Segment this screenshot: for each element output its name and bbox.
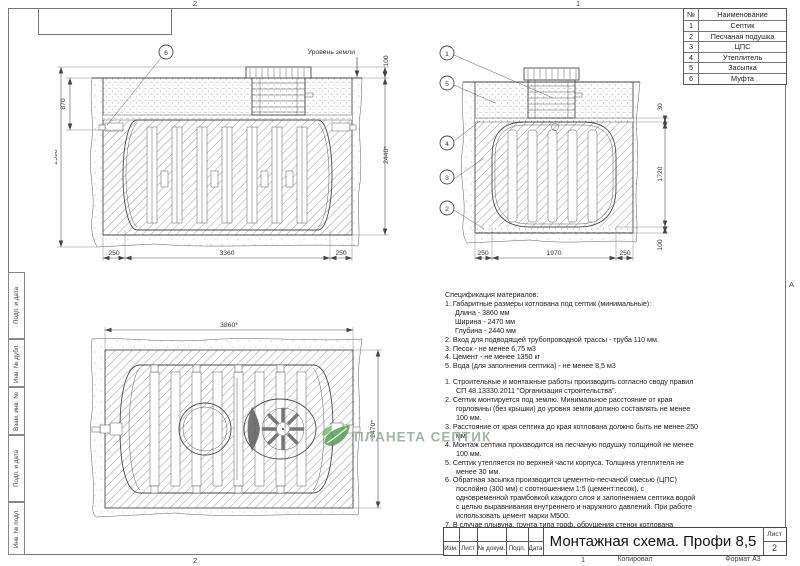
side-insulation-layer (103, 115, 352, 120)
part-name: Утеплитель (699, 53, 786, 63)
col-izm: Изм. (443, 541, 459, 555)
part-name: ЦПС (699, 42, 786, 52)
dim-1970: 1970 (546, 250, 561, 257)
title-block-line (543, 527, 544, 555)
stamp-label: Подп. и дата (13, 450, 20, 487)
col-num-header: № (684, 9, 699, 20)
stamp-cell: Взам. инв. № (8, 387, 25, 435)
dim-3360: 3360 (219, 250, 234, 257)
col-name-header: Наименование (699, 9, 786, 20)
balloon-4-label: 4 (445, 141, 449, 148)
dim-2440: 2440* (383, 146, 390, 164)
parts-table: № Наименование 1Септик 2Песчаная подушка… (683, 8, 787, 85)
note-line: 6. Обратная засыпка производится цементн… (445, 476, 698, 521)
dim-250-right: 250 (619, 250, 631, 257)
drawing-title: Монтажная схема. Профи 8,5 (545, 528, 761, 554)
dim-2590: 2590 (55, 149, 59, 164)
balloon-5-label: 5 (445, 81, 449, 88)
dim-30: 30 (657, 103, 664, 111)
table-row: 3ЦПС (684, 41, 786, 52)
table-row: 4Утеплитель (684, 52, 786, 63)
part-num: 3 (684, 42, 699, 52)
part-num: 5 (684, 63, 699, 73)
table-row: 6Муфта (684, 73, 786, 84)
footer-copied: Копировал (600, 556, 670, 563)
stamp-cell: Подп. и дата (8, 272, 25, 339)
dim-250-left: 250 (108, 250, 120, 257)
balloon-2-label: 2 (445, 206, 449, 213)
front-insulation-layer (475, 118, 633, 122)
watermark: ПЛАНЕТА СЕПТИК (320, 421, 491, 453)
dim-250-right: 250 (335, 250, 347, 257)
stamp-cell: Инв. № подл. (8, 502, 25, 555)
stamp-cell: Инв. № дубл. (8, 339, 25, 387)
side-view-drawing: 870 2590 100 2440* 250 3360 250 Уровень … (55, 33, 400, 268)
col-data: Дата (528, 541, 543, 555)
part-name: Песчаная подушка (699, 32, 786, 42)
notes-block: 1. Строительные и монтажные работы произ… (445, 378, 698, 539)
part-name: Засыпка (699, 63, 786, 73)
note-line: 2. Септик монтируется под землю. Минимал… (445, 396, 698, 423)
part-num: 6 (684, 74, 699, 84)
drawing-sheet: { "frame": { "zones": {"top_left": "2", … (0, 0, 800, 566)
balloon-3-label: 3 (445, 175, 449, 182)
dim-250-left: 250 (477, 250, 489, 257)
stamp-label: Инв. № дубл. (13, 344, 20, 383)
table-row: 2Песчаная подушка (684, 31, 786, 42)
ground-level-label: Уровень земли (308, 49, 356, 56)
stamp-label: Инв. № подл. (13, 509, 20, 548)
table-row: 1Септик (684, 20, 786, 31)
part-num: 1 (684, 21, 699, 31)
stamp-label: Подп. и дата (13, 287, 20, 324)
sheet-number: 2 (763, 541, 786, 555)
doc-number-box (38, 8, 172, 35)
balloon-6-label: 6 (164, 50, 168, 57)
col-podp: Подп. (506, 541, 528, 555)
balloon-1-label: 1 (445, 51, 449, 58)
parts-table-header: № Наименование (684, 9, 786, 20)
watermark-text: ПЛАНЕТА СЕПТИК (354, 430, 491, 445)
part-num: 2 (684, 32, 699, 42)
front-view-drawing: 30 1720 100 250 1970 250 1 5 4 3 2 (420, 33, 680, 268)
col-ndokum: № докум. (477, 541, 506, 555)
note-line: 1. Строительные и монтажные работы произ… (445, 378, 698, 396)
ground-level-callout: Уровень земли (308, 49, 357, 77)
footer-format: Формат А3 (712, 556, 774, 563)
note-line: 5. Септик утепляется по верхней части ко… (445, 459, 698, 477)
zone-label-right: А (789, 280, 794, 289)
part-name: Муфта (699, 74, 786, 84)
stamp-cell: Подп. и дата (8, 435, 25, 502)
zone-label-bottom-left: 2 (193, 556, 197, 565)
leaf-icon (320, 421, 354, 453)
dim-100: 100 (383, 55, 390, 67)
stamp-label: Взам. инв. № (13, 391, 20, 430)
zone-label-top-left: 2 (193, 0, 197, 8)
part-name: Септик (699, 21, 786, 31)
specification-block: Спецификация материалов: 1. Габаритные р… (445, 291, 698, 539)
table-row: 5Засыпка (684, 62, 786, 73)
top-view-drawing: 3860* 2470* (55, 300, 400, 540)
dim-100: 100 (657, 239, 664, 251)
side-tank-body (123, 120, 332, 230)
part-num: 4 (684, 53, 699, 63)
sheet-label: Лист (763, 527, 786, 541)
zone-label-top-right: 1 (576, 0, 580, 8)
zone-label-bottom-right: 1 (581, 555, 585, 564)
dim-3860: 3860* (220, 322, 238, 329)
spec-line: 5. Вода (для заполнения септика) - не ме… (445, 362, 698, 371)
col-list: Лист (459, 541, 477, 555)
dim-1720: 1720 (657, 166, 664, 181)
dim-870: 870 (60, 98, 67, 110)
